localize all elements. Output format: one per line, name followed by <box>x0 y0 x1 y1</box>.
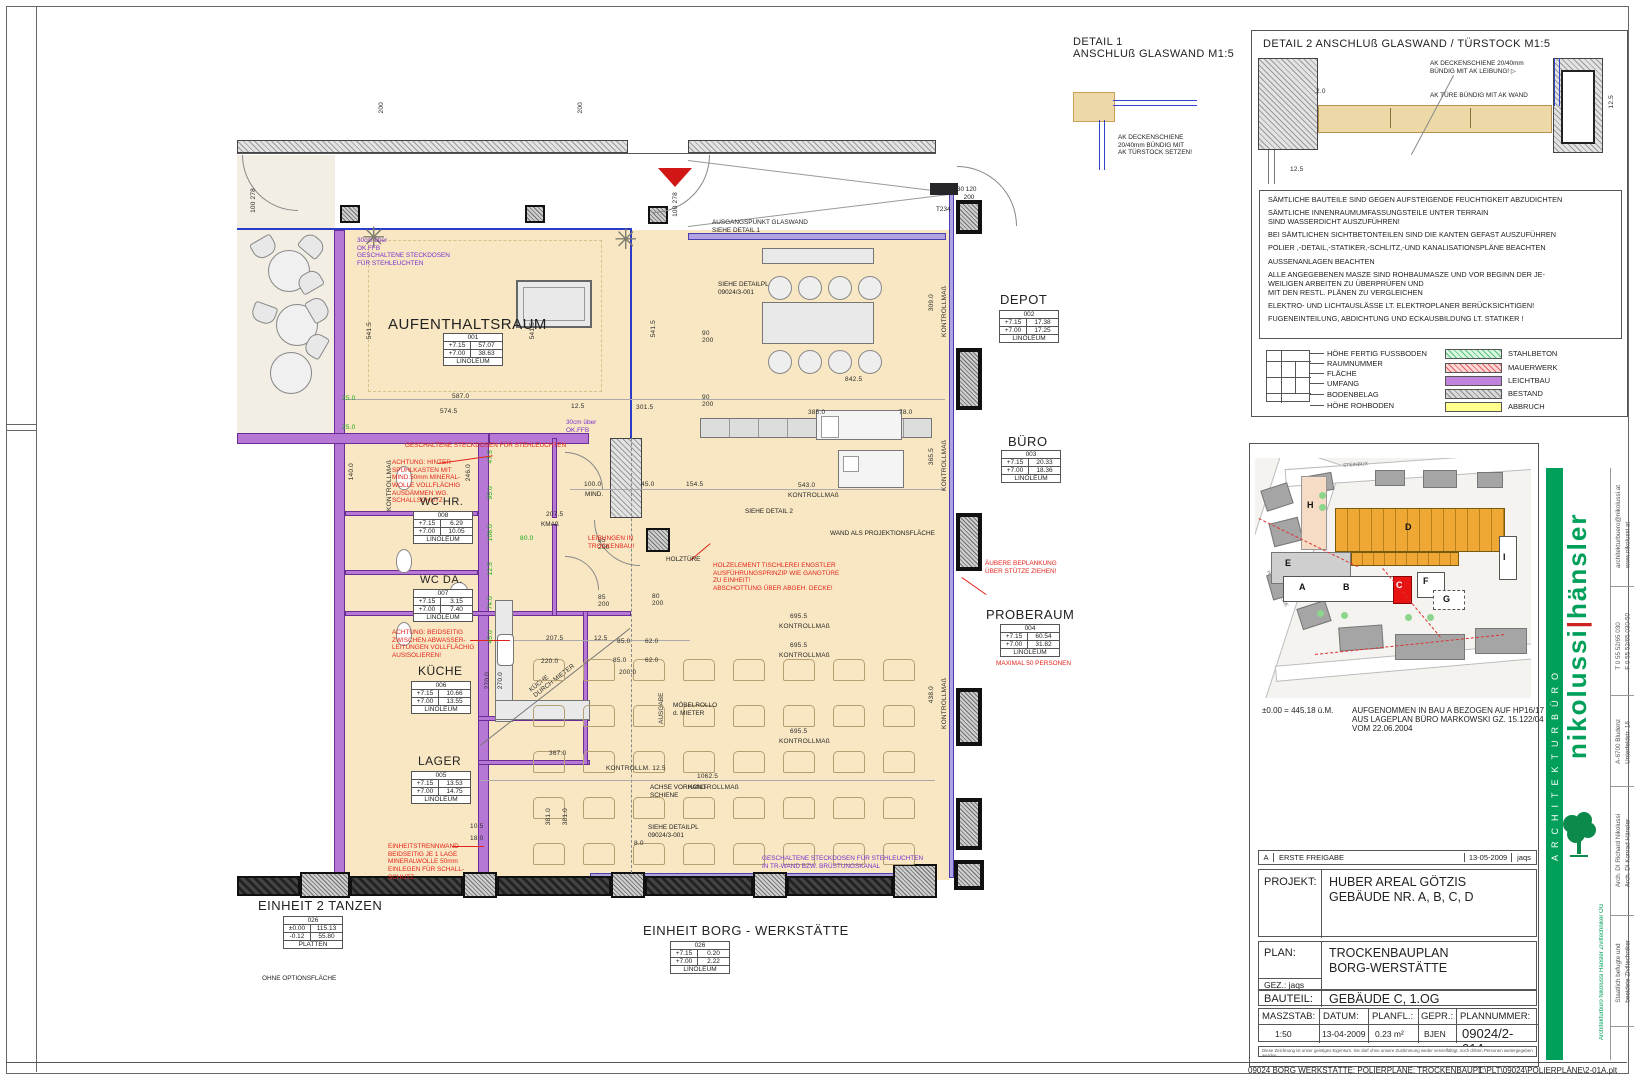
audience-seat <box>883 797 915 819</box>
detail1-glass-line <box>1113 105 1197 106</box>
plan-line1: TROCKENBAUPLAN <box>1329 946 1448 960</box>
detail2-joint <box>1470 108 1471 128</box>
detail2-glass-line <box>1559 58 1560 106</box>
dim-label: 543.0 <box>798 482 815 489</box>
bauteil-value: GEBÄUDE C, 1.OG <box>1329 992 1439 1006</box>
room-title: WC DA. <box>420 574 463 586</box>
dim-label: 85.0 <box>613 657 626 664</box>
south-pillar <box>611 872 645 898</box>
south-pillar <box>300 872 350 898</box>
dim-label: 695.5 <box>790 613 807 620</box>
chair <box>828 276 852 300</box>
general-note: ELEKTRO- UND LICHTAUSLÄSSE LT. ELEKTROPL… <box>1268 301 1613 310</box>
plan-note: EINHEITSTRENNWAND BEIDSEITIG JE 1 LAGE M… <box>388 843 464 881</box>
tree-sketch: ✳ <box>614 226 644 256</box>
dim-label: 85.0 <box>617 638 630 645</box>
wedge-line <box>688 160 948 193</box>
dim-line <box>345 399 945 400</box>
detail2-note1: AK DECKENSCHIENE 20/40mm BÜNDIG MIT AK L… <box>1430 60 1524 75</box>
detail1-note: AK DECKENSCHIENE 20/40mm BÜNDIG MIT AK T… <box>1118 134 1192 157</box>
legend-callout-diagram <box>1266 350 1310 402</box>
legend-callout: HÖHE ROHBODEN <box>1327 401 1394 410</box>
detail2-channel <box>1561 70 1595 144</box>
toilet <box>396 549 412 573</box>
dim-label: 220.0 <box>541 658 558 665</box>
bed <box>838 450 904 488</box>
dim-label: 309.0 <box>928 294 935 311</box>
legend-callout: RAUMNUMMER <box>1327 359 1383 368</box>
partition-wall <box>552 524 557 616</box>
audience-seat <box>883 659 915 681</box>
plan-note: HOLZELEMENT TISCHLEREI ENGSTLER AUSFÜHRU… <box>713 562 839 593</box>
plan-note: 30cm über OK.FFB <box>566 419 596 434</box>
dim-label: 80.0 <box>520 535 533 542</box>
audience-seat <box>733 797 765 819</box>
detail2-note2: AK TÜRE BÜNDIG MIT AK WAND <box>1430 92 1528 100</box>
audience-seat <box>633 797 665 819</box>
south-wall <box>787 876 893 896</box>
dim-label: 385.0 <box>808 409 825 416</box>
plan-box: PLAN: TROCKENBAUPLAN BORG-WERSTÄTTE GEZ.… <box>1258 941 1537 990</box>
audience-seat <box>883 751 915 773</box>
plan-note: WAND ALS PROJEKTIONSFLÄCHE <box>830 530 935 538</box>
revision-by: jaqs <box>1511 853 1536 862</box>
room-stamp: 002+7.1517.38+7.0017.25LINOLEUM <box>999 310 1059 343</box>
legend-material-label: BESTAND <box>1508 389 1543 398</box>
site-datum: ±0.00 = 445.18 ü.M. <box>1262 706 1333 715</box>
east-pillar <box>956 348 982 410</box>
detail2-line <box>1274 150 1275 184</box>
dim-label: 270.0 <box>497 672 504 689</box>
general-notes-box: SÄMTLICHE BAUTEILE SIND GEGEN AUFSTEIGEN… <box>1259 190 1622 339</box>
glass-band-east <box>949 192 954 878</box>
legend-swatch <box>1445 402 1502 412</box>
firm-og-text: Architekturbüro Nikolussi Hänsler Zivilt… <box>1599 560 1608 1040</box>
chair <box>828 350 852 374</box>
chair <box>768 350 792 374</box>
site-building-label: C <box>1396 580 1403 590</box>
firm-name: nikolussi|hänsler <box>1562 468 1598 804</box>
chair <box>768 276 792 300</box>
note-leader <box>961 577 986 595</box>
dim-label: 207.5 <box>546 635 563 642</box>
room-stamp: 007+7.153.15+7.007.40LINOLEUM <box>413 589 473 622</box>
exterior-wall <box>688 140 936 153</box>
bauteil-row: BAUTEIL: GEBÄUDE C, 1.OG <box>1258 990 1537 1006</box>
firm-contact: A-6700 Bludenz Unterfeldstr. 16 <box>1614 719 1633 764</box>
partition-wall <box>552 438 557 518</box>
dim-label: 10.5 <box>470 823 483 830</box>
dim-label: 12.5 <box>571 403 584 410</box>
room-stamp: 008+7.156.29+7.0010.05LINOLEUM <box>413 511 473 544</box>
dim-label: KONTROLLMAß <box>779 652 830 659</box>
dim-label: 200 <box>378 102 385 113</box>
door-swing <box>652 155 710 213</box>
general-notes-list: SÄMTLICHE BAUTEILE SIND GEGEN AUFSTEIGEN… <box>1260 195 1621 323</box>
detail2-joint <box>1390 108 1391 128</box>
dim-label: 78.0 <box>899 409 912 416</box>
general-note: FUGENEINTEILUNG, ABDICHTUNG UND ECKAUSBI… <box>1268 314 1613 323</box>
dim-label: 381.0 <box>562 808 569 825</box>
audience-seat <box>783 659 815 681</box>
audience-seat <box>733 659 765 681</box>
room-title: DEPOT <box>1000 292 1047 307</box>
building-I <box>1499 536 1517 580</box>
plan-note: ÄUBERE BEPLANKUNG ÜBER STÜTZE ZIEHEN! <box>985 560 1057 575</box>
room-stamp: 003+7.1520.33+7.0018.36LINOLEUM <box>1001 450 1061 483</box>
site-plan: STEINBUX HAUPTSTRASSE HEABCDFGI <box>1255 458 1531 698</box>
firm-bar: ARCHITEKTURBÜRO <box>1546 468 1563 1060</box>
audience-seat <box>633 705 665 727</box>
legend-swatch <box>1445 349 1502 359</box>
gepr-value: BJEN <box>1424 1029 1446 1039</box>
dim-label: 140.0 <box>348 463 355 480</box>
audience-seat <box>533 705 565 727</box>
room-stamp: 004+7.1560.54+7.0031.82LINOLEUM <box>1000 624 1060 657</box>
plan-note: 30cm über OK.FFB GESCHALTENE STECKDOSEN … <box>357 237 450 268</box>
south-pillar <box>753 872 787 898</box>
shaft <box>610 438 642 518</box>
room-stamp: 005+7.1513.53+7.0014.75LINOLEUM <box>411 771 471 804</box>
site-building-label: I <box>1503 552 1506 562</box>
legend-material-label: ABBRUCH <box>1508 402 1545 411</box>
building-D <box>1335 508 1505 552</box>
sideboard <box>762 248 874 264</box>
chair <box>798 350 822 374</box>
gepr-label: GEPR.: <box>1421 1011 1453 1022</box>
dim-label: 842.5 <box>845 376 862 383</box>
room-title: PROBERAUM <box>986 607 1074 622</box>
audience-seat <box>833 659 865 681</box>
detail2-dim-a: 2.0 <box>1316 88 1326 95</box>
audience-seat <box>683 843 715 865</box>
firm-name1: nikolussi <box>1562 629 1592 760</box>
dim-label: 12.5 <box>594 635 607 642</box>
east-pillar <box>956 798 982 850</box>
east-pillar <box>956 688 982 746</box>
audience-seat <box>783 705 815 727</box>
room-title: WC HR. <box>420 496 463 508</box>
firm-contact-segment: T 0 55 52/65 030 F 0 55 52/65 030-50 <box>1611 587 1634 696</box>
legend-swatch <box>1445 363 1502 373</box>
site-building-label: F <box>1423 576 1429 586</box>
projekt-label: PROJEKT: <box>1264 876 1317 888</box>
audience-seat <box>683 797 715 819</box>
dim-label: 47.5 <box>487 450 494 463</box>
dim-label: 100.0 <box>584 481 601 488</box>
plan-note: ACHSE VORHANG- SCHIENE <box>650 784 708 799</box>
site-building-label: D <box>1405 522 1412 532</box>
firm-contact-segment: Arch. DI Richard Nikolussi Arch. DI Konr… <box>1611 787 1634 916</box>
plan-note: GESCHALTENE STECKDOSEN FÜR STEHLEUCHTEN <box>405 442 566 450</box>
audience-seat <box>833 705 865 727</box>
dim-label: KONTROLLMAß <box>941 440 948 491</box>
column <box>646 528 670 552</box>
dim-label: 85 200 <box>598 594 609 608</box>
plan-note: MIND. <box>585 491 603 499</box>
dim-label: 200 <box>577 102 584 113</box>
firm-name-divider: | <box>1562 619 1592 628</box>
audience-seat <box>583 843 615 865</box>
room-title: KÜCHE <box>418 664 463 678</box>
detail2-line <box>1268 150 1269 184</box>
dim-line <box>480 780 935 781</box>
plan-note: OHNE OPTIONSFLÄCHE <box>262 975 336 983</box>
south-wall <box>237 876 300 896</box>
detail1-note-text: AK DECKENSCHIENE 20/40mm BÜNDIG MIT AK T… <box>1118 134 1192 156</box>
dim-label: 246.0 <box>465 464 472 481</box>
site-building-label: G <box>1443 594 1450 604</box>
dim-label: 301.5 <box>636 404 653 411</box>
building-H <box>1301 476 1327 550</box>
general-note: AUSSENANLAGEN BEACHTEN <box>1268 257 1613 266</box>
dim-label: 18.0 <box>470 835 483 842</box>
plan-note: MÖBELROLLO d. MIETER <box>673 702 717 717</box>
audience-seat <box>583 705 615 727</box>
audience-seat <box>733 751 765 773</box>
pillar <box>525 205 545 223</box>
footer-divider <box>6 1062 1627 1063</box>
planfl-value: 0.23 m² <box>1375 1029 1404 1039</box>
projekt-box: PROJEKT: HUBER AREAL GÖTZIS GEBÄUDE NR. … <box>1258 869 1537 937</box>
site-building-label: A <box>1299 582 1306 592</box>
dim-label: 90 200 <box>702 394 713 408</box>
room-title: BÜRO <box>1008 434 1048 449</box>
projekt-line1: HUBER AREAL GÖTZIS <box>1329 875 1466 889</box>
scale-row: MASZSTAB: DATUM: PLANFL.: GEPR.: PLANNUM… <box>1258 1008 1537 1042</box>
gez-value: jaqs <box>1289 980 1305 990</box>
audience-seat <box>533 843 565 865</box>
leichtbau-wall <box>334 230 345 880</box>
dim-label: 154.5 <box>686 481 703 488</box>
audience-seat <box>783 797 815 819</box>
dim-label: 270.0 <box>484 672 491 689</box>
audience-seat <box>583 659 615 681</box>
datum-label: DATUM: <box>1323 1011 1359 1022</box>
leichtbau-wall <box>478 433 489 880</box>
detail2-dim-b: 12.5 <box>1290 166 1303 173</box>
dim-label: KONTROLLMAß <box>788 492 839 499</box>
legend-material-label: LEICHTBAU <box>1508 376 1550 385</box>
revision-letter: A <box>1259 853 1274 862</box>
firm-contact-segment: A-6700 Bludenz Unterfeldstr. 16 <box>1611 696 1634 787</box>
dim-label: 438.0 <box>928 686 935 703</box>
firm-contact-segment: Staatlich befugte und beeidete Ziviltech… <box>1611 916 1634 1027</box>
plan-note: HOLZTÜRE <box>666 556 700 564</box>
dim-label: 100 278 <box>672 192 679 217</box>
dim-label: 45.0 <box>641 481 654 488</box>
plan-note: MAXIMAL 50 PERSONEN <box>996 660 1071 668</box>
plan-note: KMAß <box>541 521 559 529</box>
glass-wall <box>237 228 345 230</box>
dim-label: KONTROLLM. 12.5 <box>606 765 666 772</box>
plan-label: PLAN: <box>1264 947 1296 959</box>
dim-label: 25.0 <box>342 424 355 431</box>
gez-label: GEZ.: jaqs <box>1264 980 1304 990</box>
dim-label: 45.0 <box>487 630 494 643</box>
footer-right: T:\PLT\09024\POLIERPLÄNE\2-01A.plt <box>1478 1066 1617 1075</box>
footer-left: 09024 BORG WERKSTÄTTE: POLIERPLÄNE: TROC… <box>1248 1066 1483 1075</box>
firm-info-column: architekturbuero@nikolussi.at www.nikolu… <box>1610 468 1634 1060</box>
dim-label: 587.0 <box>452 393 469 400</box>
dim-label: 1062.5 <box>697 773 718 780</box>
glass-wall <box>630 228 632 440</box>
site-note: AUFGENOMMEN IN BAU A BEZOGEN AUF HP16/17… <box>1352 706 1544 733</box>
dim-label: 100 278 <box>250 188 257 213</box>
legend-callout: FLÄCHE <box>1327 369 1357 378</box>
audience-seat <box>833 751 865 773</box>
dim-label: 381.0 <box>545 808 552 825</box>
room-stamp: 001+7.1557.07+7.0038.63LINOLEUM <box>443 333 503 366</box>
dim-label: 25.0 <box>342 395 355 402</box>
legend-callout: HÖHE FERTIG FUSSBODEN <box>1327 349 1427 358</box>
legend-material-label: STAHLBETON <box>1508 349 1557 358</box>
detail2-glass-line <box>1554 58 1555 106</box>
dim-label: 541.5 <box>366 322 373 339</box>
planfl-label: PLANFL.: <box>1372 1011 1413 1022</box>
legend-swatch <box>1445 389 1502 399</box>
projekt-line2: GEBÄUDE NR. A, B, C, D <box>1329 890 1473 904</box>
general-note: ALLE ANGEGEBENEN MASZE SIND ROHBAUMASZE … <box>1268 270 1613 297</box>
south-wall <box>645 876 753 896</box>
partition-wall <box>345 611 631 616</box>
audience-seat <box>783 751 815 773</box>
masz-label: MASZSTAB: <box>1262 1011 1315 1022</box>
plannr-label: PLANNUMMER: <box>1460 1011 1530 1022</box>
firm-contact: Arch. DI Richard Nikolussi Arch. DI Konr… <box>1614 814 1633 887</box>
east-pillar <box>956 513 982 571</box>
dim-label: 80 200 <box>652 593 663 607</box>
pillar <box>340 205 360 223</box>
plan-note: SIEHE DETAILPL 09024/3-001 <box>648 824 699 839</box>
audience-seat <box>733 843 765 865</box>
plan-note: T234 <box>936 206 951 214</box>
dim-label: KONTROLLMAß <box>779 738 830 745</box>
dim-label: 695.5 <box>790 728 807 735</box>
audience-seat <box>883 705 915 727</box>
legend-swatch <box>1445 376 1502 386</box>
revision-desc: ERSTE FREIGABE <box>1274 853 1464 862</box>
dim-label: 365.5 <box>928 448 935 465</box>
detail1-glass-line <box>1104 120 1105 170</box>
revision-row: A ERSTE FREIGABE 13-05-2009 jaqs <box>1258 850 1537 865</box>
firm-contact-segment: architekturbuero@nikolussi.at www.nikolu… <box>1611 468 1634 587</box>
dim-label: 207.5 <box>546 511 563 518</box>
east-pillar <box>954 860 984 890</box>
room-title: LAGER <box>418 754 461 768</box>
detail1-subtitle: ANSCHLUß GLASWAND M1:5 <box>1073 48 1234 60</box>
dim-label: 574.5 <box>440 408 457 415</box>
room-stamp: 026+7.150.20+7.002.22LINOLEUM <box>670 941 730 974</box>
plan-note: ACHTUNG: BEIDSEITIG ZWISCHEN ABWASSER- L… <box>392 629 474 660</box>
room-stamp: 026±0.00115.13-0.1255.80PLATTEN <box>283 916 343 949</box>
chair <box>798 276 822 300</box>
legend-callout: UMFANG <box>1327 379 1359 388</box>
dim-label: 108.0 <box>487 524 494 541</box>
dim-label: KONTROLLMAß <box>941 678 948 729</box>
general-note: SÄMTLICHE BAUTEILE SIND GEGEN AUFSTEIGEN… <box>1268 195 1613 204</box>
datum-value: 13-04-2009 <box>1322 1029 1365 1039</box>
wall-line <box>237 153 936 154</box>
dim-label: KONTROLLMAß <box>941 286 948 337</box>
plan-note: AUSGANGSPUNKT GLASWAND SIEHE DETAIL 1 <box>712 219 808 234</box>
detail2-note1-text: AK DECKENSCHIENE 20/40mm BÜNDIG MIT AK L… <box>1430 60 1524 75</box>
firm-name2: hänsler <box>1562 513 1592 620</box>
plan-note: SIEHE DETAIL 2 <box>745 508 793 516</box>
detail1-title: DETAIL 1 ANSCHLUß GLASWAND M1:5 <box>1073 36 1234 60</box>
firm-contact: T 0 55 52/65 030 F 0 55 52/65 030-50 <box>1614 613 1633 670</box>
detail2-dim-c: 12.5 <box>1608 95 1615 108</box>
site-building-label: H <box>1307 500 1314 510</box>
general-note: SÄMTLICHE INNENRAUMUMFASSUNGSTEILE UNTER… <box>1268 208 1613 226</box>
table <box>762 302 874 344</box>
plan-note: SIEHE DETAILPL 09024/3-001 <box>718 281 769 296</box>
revision-date: 13-05-2009 <box>1464 853 1511 862</box>
partition-wall <box>583 611 588 765</box>
dim-label: 200.0 <box>619 669 636 676</box>
detail1-glass-line <box>1099 120 1100 170</box>
chair <box>858 276 882 300</box>
bauteil-label: BAUTEIL: <box>1264 993 1313 1005</box>
audience-seat <box>733 705 765 727</box>
room-title: AUFENTHALTSRAUM <box>388 316 547 333</box>
plan-note: GESCHALTENE STECKDOSEN FÜR STEHLEUCHTEN … <box>762 855 923 870</box>
detail1-beam <box>1073 92 1115 122</box>
dim-label: 12.5 <box>487 562 494 575</box>
masz-value: 1:50 <box>1275 1029 1292 1039</box>
detail2-title: DETAIL 2 ANSCHLUß GLASWAND / TÜRSTOCK M1… <box>1263 38 1550 50</box>
audience-seat <box>683 751 715 773</box>
dim-label: KONTROLLMAß <box>779 623 830 630</box>
south-wall <box>497 876 611 896</box>
firm-contact: architekturbuero@nikolussi.at www.nikolu… <box>1614 485 1633 568</box>
exterior-wall <box>237 140 628 153</box>
dim-label: 62.0 <box>645 657 658 664</box>
dim-label: 95.0 <box>487 486 494 499</box>
firm-tree-logo <box>1558 808 1600 860</box>
audience-seat <box>833 797 865 819</box>
dim-label: 74.0 <box>487 596 494 609</box>
dim-line <box>570 489 945 490</box>
general-note: POLIER ,-DETAIL,-STATIKER,-SCHLITZ,-UND … <box>1268 243 1613 252</box>
site-building-label: E <box>1285 558 1291 568</box>
dim-label: 62.0 <box>645 638 658 645</box>
firm-contact: Staatlich befugte und beeidete Ziviltech… <box>1614 940 1633 1003</box>
dim-label: 8.0 <box>634 840 644 847</box>
room-title: EINHEIT BORG - WERKSTÄTTE <box>643 923 849 938</box>
dim-label: 367.0 <box>549 750 566 757</box>
detail2-bestand-block <box>1258 58 1318 150</box>
chair <box>858 350 882 374</box>
building-D-annex <box>1351 552 1459 566</box>
audience-seat <box>683 659 715 681</box>
detail2-note2-text: AK TÜRE BÜNDIG MIT AK WAND <box>1430 92 1528 99</box>
general-note: BEI SÄMTLICHEN SICHTBETONTEILEN SIND DIE… <box>1268 230 1613 239</box>
detail1-title-text: DETAIL 1 <box>1073 36 1123 48</box>
site-building-label: B <box>1343 582 1350 592</box>
audience-seat <box>583 797 615 819</box>
room-stamp: 006+7.1510.66+7.0013.55LINOLEUM <box>411 681 471 714</box>
lounge-table <box>270 352 312 394</box>
plan-note: LEIBUNGEN IN TROCKENBAU! <box>588 535 634 550</box>
dim-label: 541.5 <box>650 320 657 337</box>
detail1-glass-line <box>1113 100 1197 101</box>
plan-line2: BORG-WERSTÄTTE <box>1329 961 1447 975</box>
south-pillar <box>463 872 497 898</box>
bed <box>816 410 902 440</box>
room-title: EINHEIT 2 TANZEN <box>258 898 382 913</box>
kitchen-sink <box>497 634 514 666</box>
